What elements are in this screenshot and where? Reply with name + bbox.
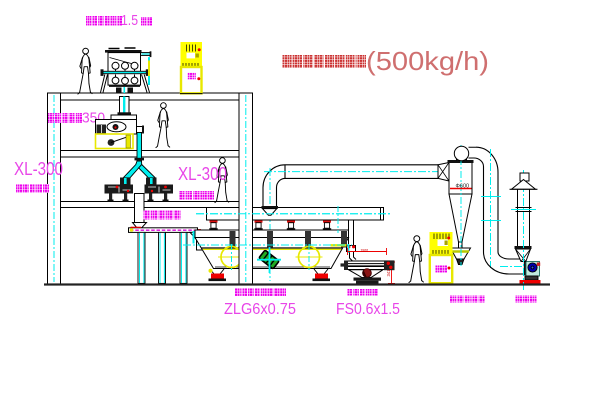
svg-text:XL-300: XL-300 bbox=[14, 159, 63, 179]
svg-text:XL-300: XL-300 bbox=[178, 164, 227, 184]
svg-text:ZLG6x0.75: ZLG6x0.75 bbox=[224, 301, 296, 318]
svg-text:Φ600: Φ600 bbox=[456, 184, 470, 190]
svg-text:1500: 1500 bbox=[361, 248, 369, 253]
svg-text:(500kg/h): (500kg/h) bbox=[366, 46, 489, 76]
svg-text:1.5: 1.5 bbox=[121, 12, 138, 29]
svg-text:FS0.6x1.5: FS0.6x1.5 bbox=[336, 301, 400, 318]
